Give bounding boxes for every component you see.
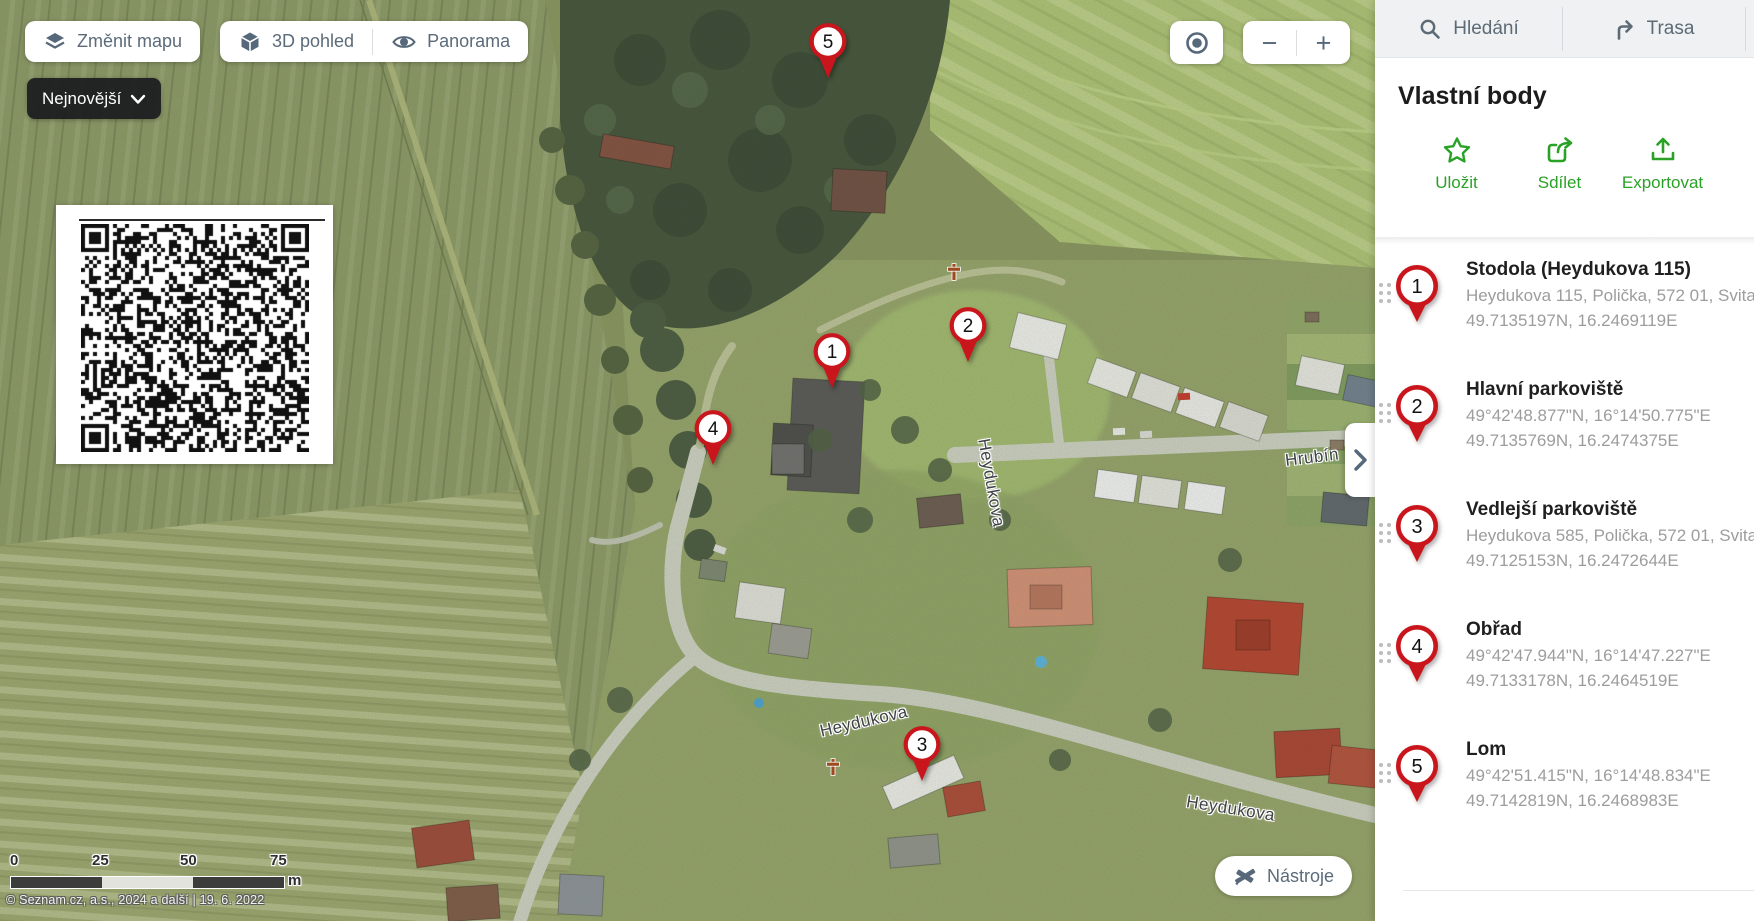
- point-subtitle: 49°42'47.944"N, 16°14'47.227"E: [1466, 643, 1754, 668]
- svg-text:1: 1: [1411, 276, 1422, 298]
- search-icon: [1418, 17, 1442, 41]
- save-button[interactable]: Uložit: [1405, 136, 1508, 193]
- svg-text:5: 5: [1411, 756, 1422, 778]
- numbered-pin-icon: 4: [1394, 625, 1440, 683]
- map-pin[interactable]: 5: [808, 22, 848, 80]
- point-subtitle: Heydukova 585, Polička, 572 01, Svitavy: [1466, 523, 1754, 548]
- svg-text:4: 4: [708, 419, 719, 440]
- share-icon: [1545, 136, 1575, 165]
- svg-text:1: 1: [827, 342, 838, 363]
- imagery-date-label: Nejnovější: [42, 89, 121, 109]
- tab-route[interactable]: Trasa: [1563, 0, 1745, 57]
- map-viewport[interactable]: Heydukova Hrubín Heydukova Heydukova 1 2…: [0, 0, 1375, 921]
- point-text: Hlavní parkoviště 49°42'48.877"N, 16°14'…: [1466, 377, 1754, 453]
- tools-icon: [1233, 864, 1257, 888]
- numbered-pin-icon: 2: [1394, 385, 1440, 443]
- point-text: Lom 49°42'51.415"N, 16°14'48.834"E 49.71…: [1466, 737, 1754, 813]
- drag-handle[interactable]: [1379, 283, 1391, 303]
- zoom-out-button[interactable]: −: [1243, 23, 1296, 63]
- map-application-window: Heydukova Hrubín Heydukova Heydukova 1 2…: [0, 0, 1754, 921]
- custom-points-list: 1 Stodola (Heydukova 115) Heydukova 115,…: [1375, 245, 1754, 845]
- svg-text:3: 3: [1411, 516, 1422, 538]
- list-item[interactable]: 3 Vedlejší parkoviště Heydukova 585, Pol…: [1375, 485, 1754, 605]
- tab-route-label: Trasa: [1647, 18, 1695, 40]
- scale-tick: 25: [92, 852, 109, 869]
- point-subtitle: 49°42'51.415"N, 16°14'48.834"E: [1466, 763, 1754, 788]
- point-title: Obřad: [1466, 617, 1754, 643]
- chevron-right-icon: [1352, 445, 1368, 475]
- point-coordinates: 49.7125153N, 16.2472644E: [1466, 548, 1754, 573]
- qr-code-panel: [56, 205, 333, 464]
- qr-code-image: [81, 224, 309, 452]
- change-map-button[interactable]: Změnit mapu: [25, 21, 200, 62]
- svg-text:5: 5: [823, 32, 834, 53]
- export-label: Exportovat: [1622, 173, 1703, 193]
- drag-handle[interactable]: [1379, 763, 1391, 783]
- drag-handle[interactable]: [1379, 523, 1391, 543]
- divider: [1403, 890, 1754, 891]
- divider: [1745, 7, 1746, 51]
- point-title: Stodola (Heydukova 115): [1466, 257, 1754, 283]
- page-title: Vlastní body: [1398, 82, 1547, 111]
- svg-text:4: 4: [1411, 636, 1422, 658]
- map-attribution: © Seznam.cz, a.s., 2024 a další | 19. 6.…: [6, 893, 264, 907]
- list-item[interactable]: 5 Lom 49°42'51.415"N, 16°14'48.834"E 49.…: [1375, 725, 1754, 845]
- share-button[interactable]: Sdílet: [1508, 136, 1611, 193]
- point-coordinates: 49.7142819N, 16.2468983E: [1466, 788, 1754, 813]
- map-pin[interactable]: 3: [902, 725, 942, 783]
- point-title: Vedlejší parkoviště: [1466, 497, 1754, 523]
- zoom-control: − +: [1243, 21, 1350, 64]
- locate-target-icon: [1184, 30, 1210, 56]
- point-title: Lom: [1466, 737, 1754, 763]
- point-subtitle: 49°42'48.877"N, 16°14'50.775"E: [1466, 403, 1754, 428]
- star-icon: [1442, 136, 1472, 165]
- view-3d-label: 3D pohled: [272, 31, 354, 52]
- list-item[interactable]: 2 Hlavní parkoviště 49°42'48.877"N, 16°1…: [1375, 365, 1754, 485]
- save-label: Uložit: [1435, 173, 1478, 193]
- point-subtitle: Heydukova 115, Polička, 572 01, Svitavy: [1466, 283, 1754, 308]
- point-coordinates: 49.7135769N, 16.2474375E: [1466, 428, 1754, 453]
- numbered-pin-icon: 5: [1394, 745, 1440, 803]
- share-label: Sdílet: [1538, 173, 1581, 193]
- imagery-date-dropdown[interactable]: Nejnovější: [27, 78, 161, 119]
- point-title: Hlavní parkoviště: [1466, 377, 1754, 403]
- drag-handle[interactable]: [1379, 403, 1391, 423]
- panorama-label: Panorama: [427, 31, 510, 52]
- point-text: Stodola (Heydukova 115) Heydukova 115, P…: [1466, 257, 1754, 333]
- sidebar-tab-bar: Hledání Trasa: [1375, 0, 1754, 58]
- qr-top-rule: [79, 219, 325, 221]
- scale-bar-segments: [10, 876, 285, 889]
- export-upload-icon: [1648, 136, 1678, 165]
- wayside-cross-icon: [947, 263, 961, 281]
- actions-row: Uložit Sdílet Exportovat: [1405, 136, 1714, 193]
- map-pin[interactable]: 4: [693, 409, 733, 467]
- list-item[interactable]: 4 Obřad 49°42'47.944"N, 16°14'47.227"E 4…: [1375, 605, 1754, 725]
- tools-button[interactable]: Nástroje: [1215, 856, 1352, 896]
- chevron-down-icon: [130, 93, 146, 105]
- cube-3d-icon: [238, 30, 262, 54]
- view-3d-button[interactable]: 3D pohled: [220, 21, 372, 62]
- svg-text:3: 3: [917, 735, 928, 756]
- scale-tick: 75: [270, 852, 287, 869]
- view-mode-group: 3D pohled Panorama: [220, 21, 528, 62]
- numbered-pin-icon: 1: [1394, 265, 1440, 323]
- wayside-cross-icon: [826, 758, 840, 776]
- point-coordinates: 49.7133178N, 16.2464519E: [1466, 668, 1754, 693]
- panorama-button[interactable]: Panorama: [373, 21, 528, 62]
- export-button[interactable]: Exportovat: [1611, 136, 1714, 193]
- tab-search[interactable]: Hledání: [1375, 0, 1562, 57]
- point-coordinates: 49.7135197N, 16.2469119E: [1466, 308, 1754, 333]
- panorama-eye-icon: [391, 30, 417, 54]
- map-scale-bar: 0 25 50 75 m: [8, 852, 308, 892]
- scale-unit: m: [288, 872, 301, 889]
- svg-text:2: 2: [963, 316, 974, 337]
- map-pin[interactable]: 1: [812, 332, 852, 390]
- scale-tick: 50: [180, 852, 197, 869]
- numbered-pin-icon: 3: [1394, 505, 1440, 563]
- locate-me-button[interactable]: [1170, 21, 1223, 64]
- map-pin[interactable]: 2: [948, 306, 988, 364]
- point-text: Obřad 49°42'47.944"N, 16°14'47.227"E 49.…: [1466, 617, 1754, 693]
- scale-tick: 0: [10, 852, 18, 869]
- list-item[interactable]: 1 Stodola (Heydukova 115) Heydukova 115,…: [1375, 245, 1754, 365]
- route-icon: [1614, 17, 1636, 41]
- tab-search-label: Hledání: [1453, 18, 1519, 40]
- drag-handle[interactable]: [1379, 643, 1391, 663]
- layers-icon: [43, 30, 67, 54]
- change-map-label: Změnit mapu: [77, 31, 182, 52]
- zoom-in-button[interactable]: +: [1297, 23, 1350, 63]
- tools-label: Nástroje: [1267, 866, 1334, 887]
- sidebar-panel: Hledání Trasa Vlastní body Uložit: [1375, 0, 1754, 921]
- sidebar-collapse-handle[interactable]: [1345, 423, 1375, 497]
- svg-text:2: 2: [1411, 396, 1422, 418]
- point-text: Vedlejší parkoviště Heydukova 585, Polič…: [1466, 497, 1754, 573]
